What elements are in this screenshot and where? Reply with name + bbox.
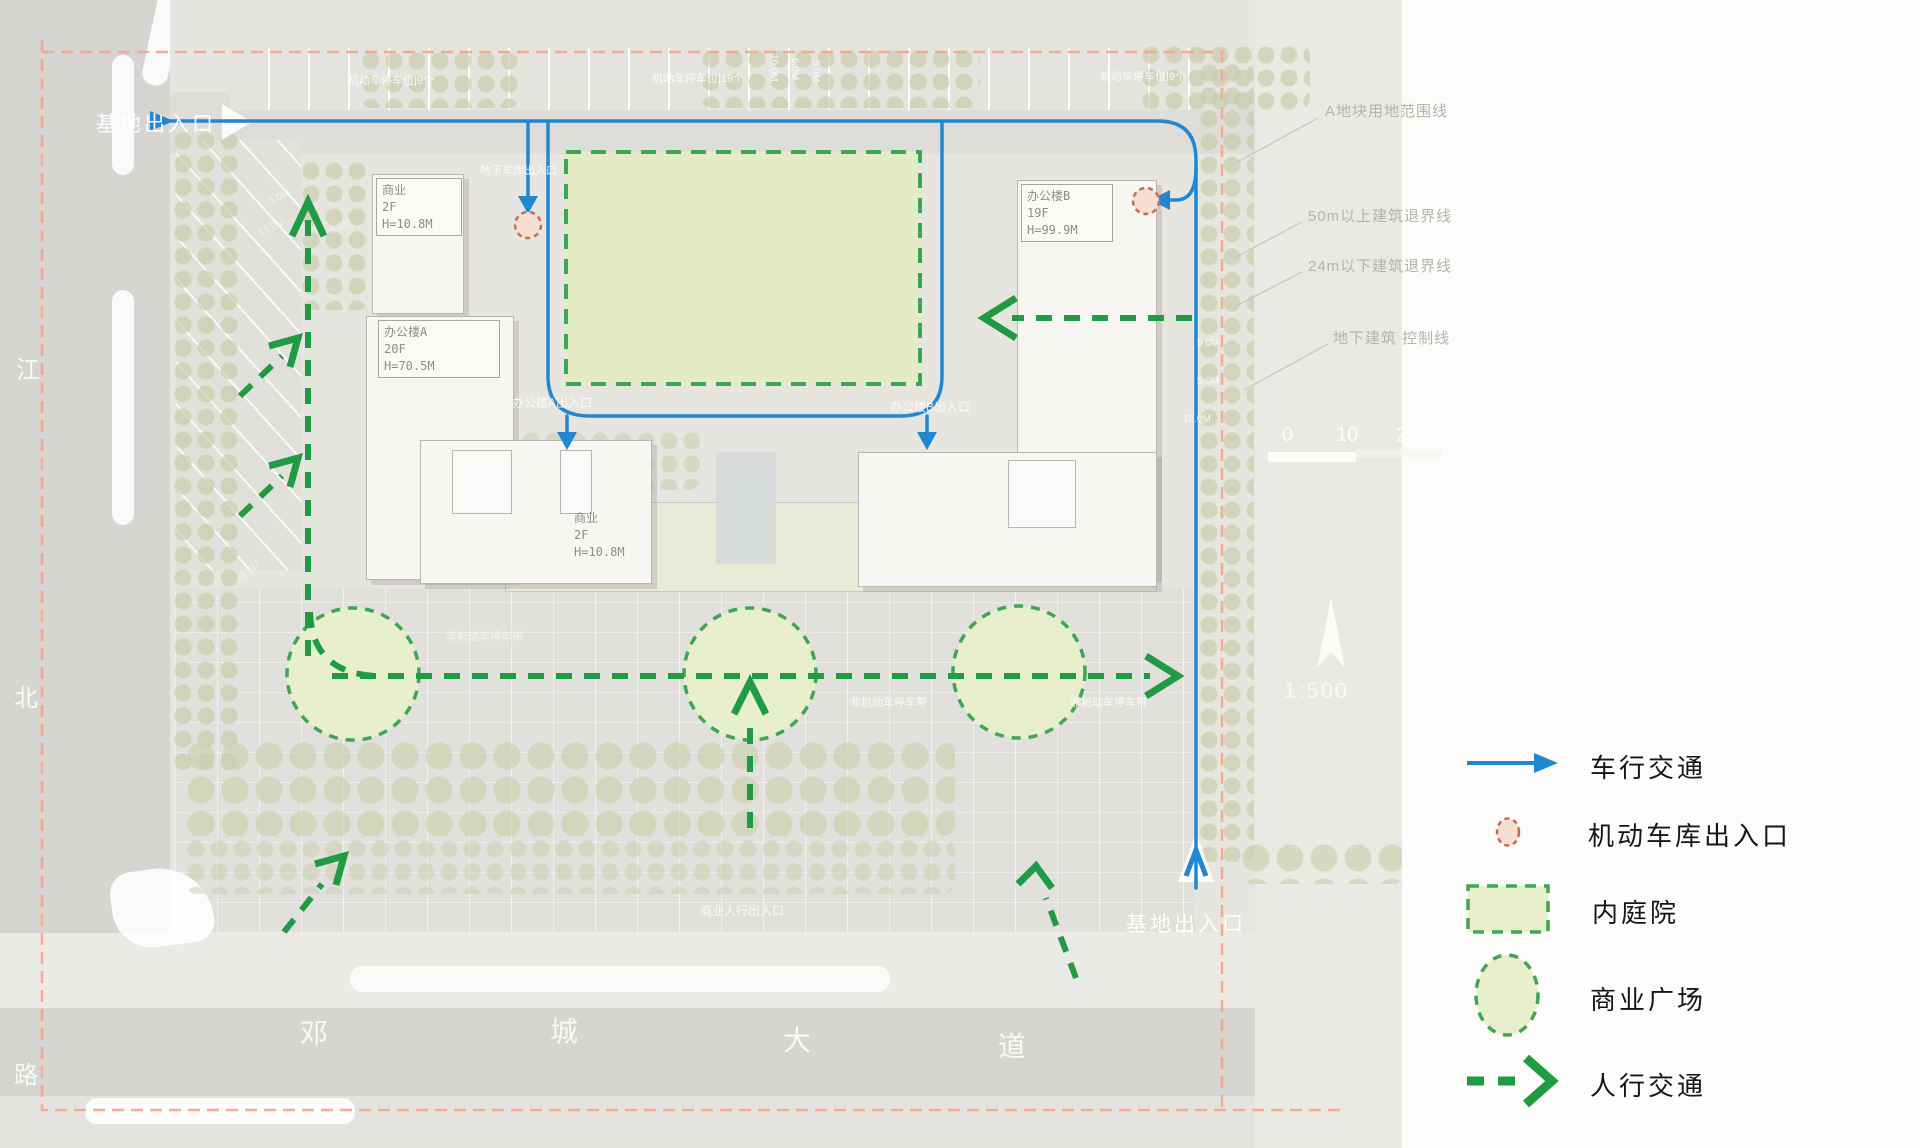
road-name-bottom: 城 [550,1010,580,1050]
bike-parking-label: 非机动车停车带 [446,628,523,644]
legend-pedestrian-arrowhead [1526,1058,1552,1104]
garage-entry-circle [1133,188,1159,214]
annotation-site-boundary: A地块用地范围线 [1325,100,1448,121]
garage-entry-circle [515,212,541,238]
site-entry-label-top: 基地出入口 [96,108,216,138]
site-entry-label-bottom: 基地出入口 [1126,908,1246,938]
road-name-bottom: 道 [998,1025,1028,1065]
scale-tick: 20M [1396,424,1435,447]
dimension-label: 6.0M [789,58,800,80]
parking-count-label: 机动车停车位|9个 [348,72,434,88]
shop-pedestrian-entry-label: 商业人行出入口 [700,902,784,919]
annotation-underground-control: 地下建筑 控制线 [1333,327,1450,348]
leader-line [1234,222,1302,258]
north-compass-icon [1317,598,1345,668]
bike-parking-label: 非机动车停车带 [850,694,927,710]
scale-bar-segment [1356,449,1443,457]
road-name-left: 江 [16,350,42,385]
parking-count-label: 机动车停车位|9个 [1100,68,1186,84]
inner-courtyard [566,152,920,384]
parking-count-label: 机动车停车位|18个 [652,70,744,86]
legend-garage-circle [1497,819,1519,846]
leader-line [1244,344,1328,390]
vehicle-arrowhead-down [557,432,577,450]
legend-item-inner-courtyard: 内庭院 [1592,893,1679,930]
pedestrian-arrowhead-ne [315,856,344,885]
dimension-label: 5.0M [1197,376,1219,387]
road-name-left: 路 [14,1055,40,1090]
commercial-plaza-circle [953,606,1085,738]
annotation-setback-24m: 24m以下建筑退界线 [1308,255,1452,276]
bike-parking-label: 非机动车停车带 [1070,694,1147,710]
legend-item-pedestrian-traffic: 人行交通 [1590,1066,1706,1103]
scale-tick: 10 [1336,424,1358,447]
vehicle-arrowhead-down [917,432,937,450]
legend-item-vehicle-traffic: 车行交通 [1590,748,1706,785]
scale-bar-segment [1268,452,1356,462]
vehicle-arrowhead-down [518,196,538,214]
road-name-left: 北 [14,678,40,713]
overlay-graphics [0,0,1920,1148]
dimension-label: 10.0M [768,54,779,82]
dimension-label: 5.0M [1197,338,1219,349]
pedestrian-route-diagonal-south [1046,898,1076,978]
dimension-label: 5.0M [810,60,821,82]
road-name-bottom: 大 [783,1019,813,1059]
legend-courtyard-rect [1468,886,1548,932]
pedestrian-route-diagonal [240,356,282,396]
office-a-entry-label: 办公楼A出入口 [512,394,592,411]
site-plan-canvas: 商业2FH=10.8M 办公楼A20FH=70.5M 办公楼B19FH=99.9… [0,0,1920,1148]
office-b-entry-label: 办公楼B出入口 [890,398,970,415]
pedestrian-arrowhead-left [984,298,1016,338]
pedestrian-route-diagonal [240,476,282,516]
road-name-bottom: 邓 [300,1012,330,1052]
pedestrian-arrowhead-ne [269,338,298,367]
legend-item-commercial-plaza: 商业广场 [1590,980,1706,1017]
pedestrian-route-diagonal-southwest [284,884,322,932]
scale-tick: 0 [1282,424,1293,447]
legend-vehicle-arrowhead [1534,753,1558,773]
dimension-label: 10.0M [1183,414,1211,425]
legend-plaza-circle [1476,955,1538,1035]
pedestrian-arrowhead-ne [269,458,298,487]
annotation-setback-50m: 50m以上建筑退界线 [1308,205,1452,226]
pedestrian-arrowhead-right [1146,656,1178,696]
garage-entry-label: 地下车库出入口 [480,162,557,178]
scale-ratio: 1:500 [1284,678,1349,704]
legend-item-garage-entry: 机动车库出入口 [1588,816,1791,853]
leader-line [1236,272,1302,306]
leader-line [1230,118,1318,166]
vehicle-route-garage-b-branch [1170,168,1196,200]
pedestrian-arrowhead-up [1018,866,1052,888]
